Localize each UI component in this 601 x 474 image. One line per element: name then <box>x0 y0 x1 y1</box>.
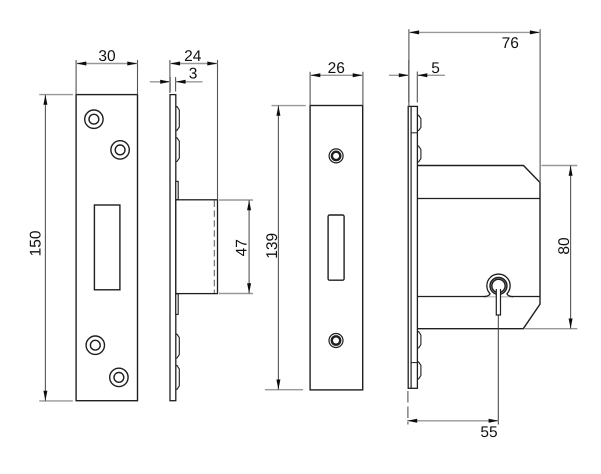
svg-text:26: 26 <box>328 60 345 77</box>
svg-text:55: 55 <box>480 424 497 441</box>
svg-text:24: 24 <box>184 48 202 65</box>
svg-text:76: 76 <box>502 35 519 52</box>
svg-text:5: 5 <box>431 60 440 77</box>
svg-text:3: 3 <box>189 66 198 83</box>
svg-text:150: 150 <box>28 230 45 256</box>
svg-text:47: 47 <box>234 239 251 256</box>
svg-text:30: 30 <box>98 48 116 65</box>
svg-text:139: 139 <box>264 233 281 259</box>
svg-text:80: 80 <box>556 237 573 255</box>
